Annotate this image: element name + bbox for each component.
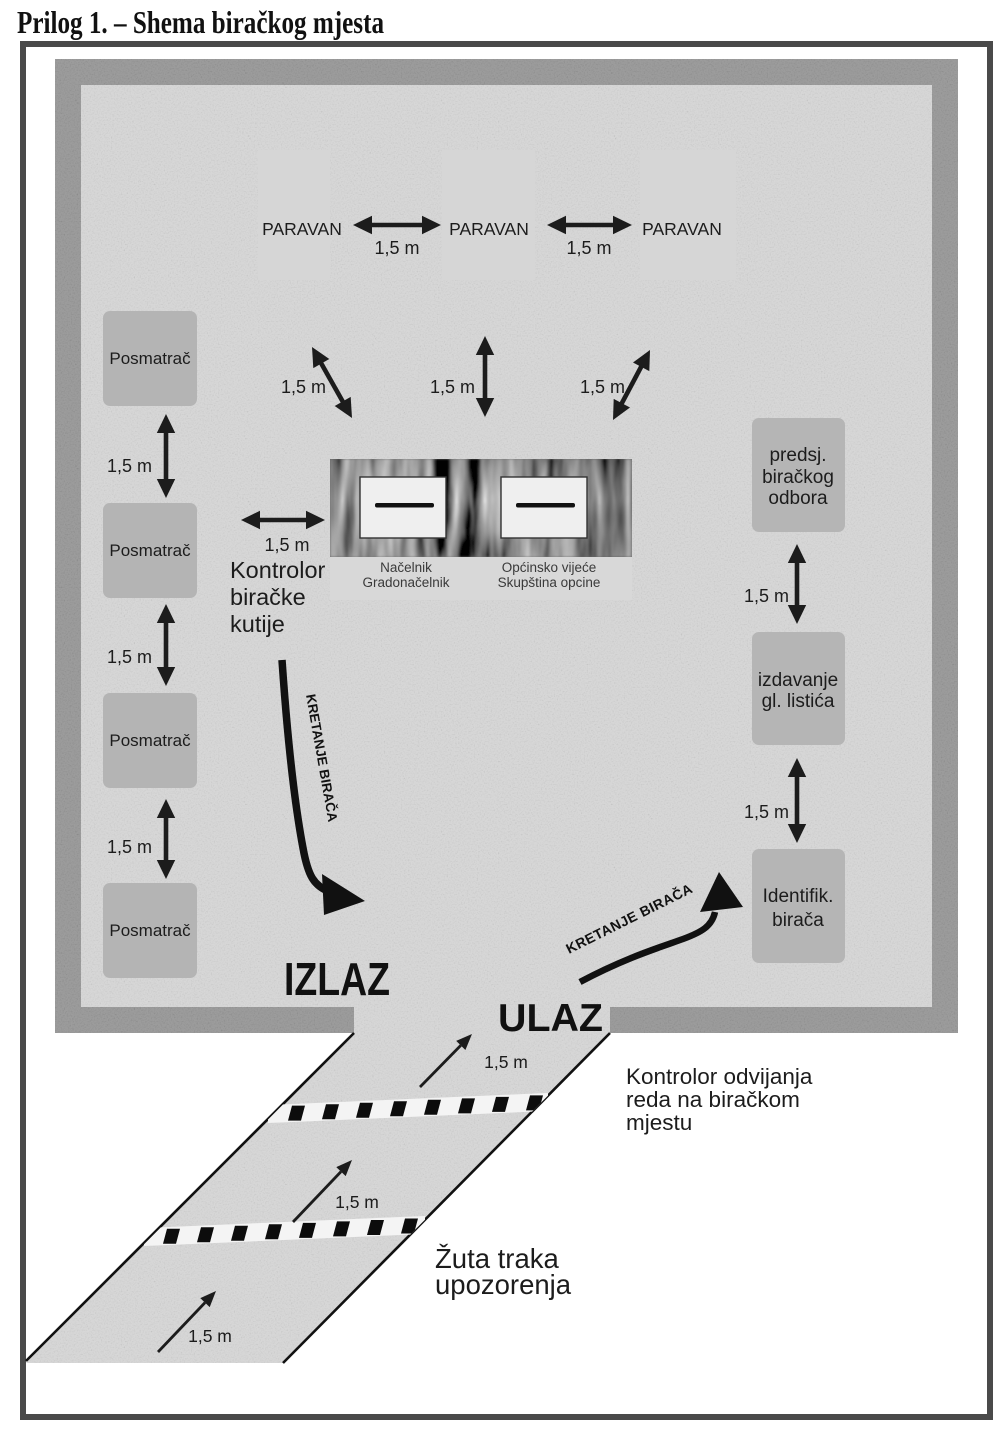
svg-text:1,5 m: 1,5 m (580, 377, 625, 397)
svg-text:1,5 m: 1,5 m (744, 802, 789, 822)
svg-text:1,5 m: 1,5 m (107, 837, 152, 857)
svg-text:Posmatrač: Posmatrač (109, 921, 191, 940)
svg-text:ULAZ: ULAZ (498, 997, 603, 1040)
svg-text:odbora: odbora (768, 488, 828, 509)
svg-text:upozorenja: upozorenja (435, 1269, 572, 1300)
svg-text:Općinsko vijeće: Općinsko vijeće (502, 560, 597, 575)
svg-text:1,5 m: 1,5 m (264, 535, 309, 555)
svg-text:1,5 m: 1,5 m (566, 238, 611, 258)
svg-text:Identifik.: Identifik. (763, 886, 834, 907)
svg-text:Načelnik: Načelnik (380, 560, 432, 575)
svg-text:reda na biračkom: reda na biračkom (626, 1087, 800, 1112)
svg-text:mjestu: mjestu (626, 1110, 692, 1135)
svg-text:Prilog 1. – Shema biračkog mje: Prilog 1. – Shema biračkog mjesta (17, 4, 384, 40)
svg-text:PARAVAN: PARAVAN (262, 219, 342, 239)
svg-text:biračkog: biračkog (762, 467, 834, 488)
svg-text:Posmatrač: Posmatrač (109, 541, 191, 560)
svg-text:1,5 m: 1,5 m (430, 377, 475, 397)
svg-text:1,5 m: 1,5 m (744, 586, 789, 606)
svg-text:birača: birača (772, 910, 824, 931)
svg-text:kutije: kutije (230, 611, 285, 637)
svg-text:predsj.: predsj. (769, 445, 826, 466)
svg-text:Gradonačelnik: Gradonačelnik (362, 575, 449, 590)
svg-text:izdavanje: izdavanje (758, 670, 838, 691)
svg-text:Skupština opcine: Skupština opcine (498, 575, 601, 590)
svg-text:1,5 m: 1,5 m (335, 1192, 379, 1212)
svg-text:PARAVAN: PARAVAN (449, 219, 529, 239)
svg-text:Posmatrač: Posmatrač (109, 731, 191, 750)
svg-text:1,5 m: 1,5 m (374, 238, 419, 258)
svg-text:1,5 m: 1,5 m (107, 647, 152, 667)
svg-text:Kontrolor odvijanja: Kontrolor odvijanja (626, 1064, 813, 1089)
svg-text:biračke: biračke (230, 584, 306, 610)
svg-text:Kontrolor: Kontrolor (230, 557, 326, 583)
svg-text:1,5 m: 1,5 m (107, 456, 152, 476)
svg-text:gl. listića: gl. listića (762, 691, 835, 712)
svg-text:1,5 m: 1,5 m (484, 1052, 528, 1072)
svg-text:1,5 m: 1,5 m (281, 377, 326, 397)
svg-text:PARAVAN: PARAVAN (642, 219, 722, 239)
svg-text:Posmatrač: Posmatrač (109, 349, 191, 368)
svg-text:IZLAZ: IZLAZ (284, 953, 390, 1005)
svg-text:1,5 m: 1,5 m (188, 1326, 232, 1346)
